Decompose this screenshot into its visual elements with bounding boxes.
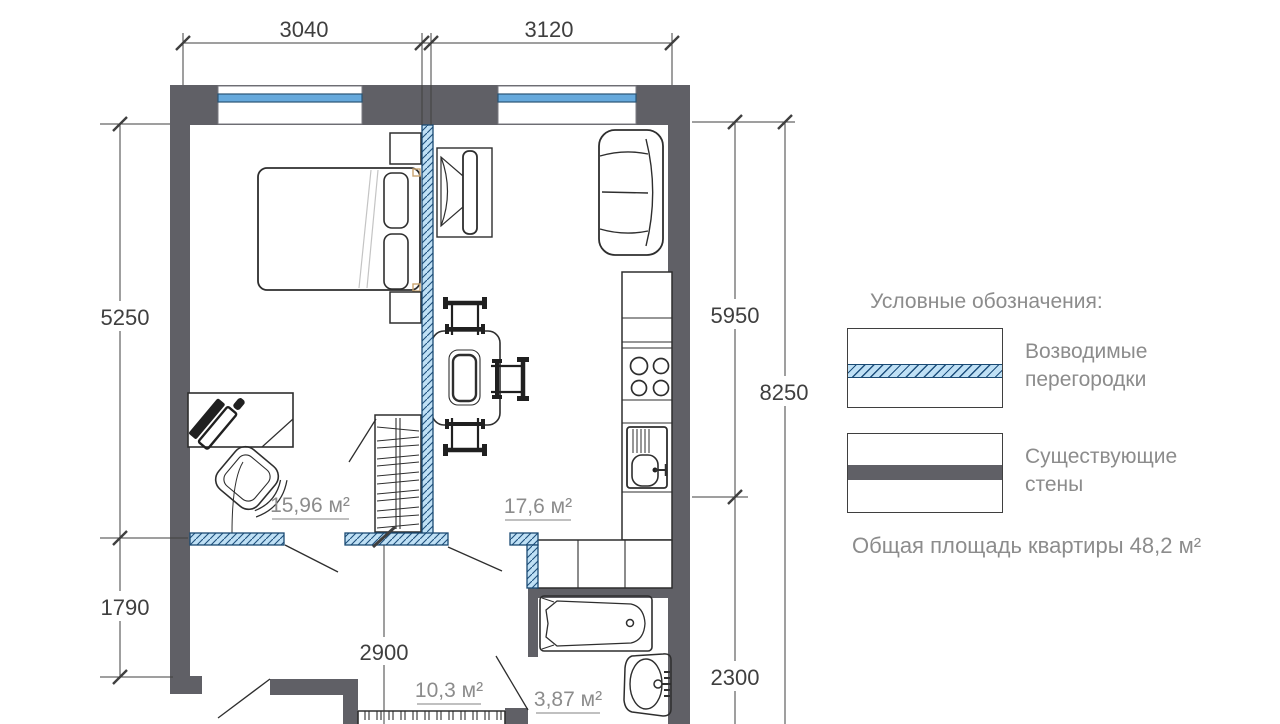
entrance-door [218, 679, 270, 718]
partition-center [345, 533, 448, 545]
dim-right-upper: 5950 [711, 303, 760, 328]
dim-right-total: 8250 [760, 380, 809, 405]
partition-hatch-band [848, 364, 1002, 378]
window-1 [218, 86, 362, 124]
room-label-bedroom: 15,96 м² [270, 494, 350, 517]
legend-label-partitions: Возводимые перегородки [1025, 338, 1190, 393]
dim-left-upper: 5250 [101, 305, 150, 330]
partition-bath-h [510, 533, 538, 545]
sofa [599, 130, 663, 255]
bottom-wall-horizontal [270, 679, 358, 695]
hall-wardrobe [358, 711, 505, 724]
dining-chair [443, 297, 487, 335]
dim-hall: 2900 [360, 640, 409, 665]
washbasin [624, 654, 671, 716]
bathroom-left-wall [528, 598, 538, 657]
legend-swatch-partitions [847, 328, 1003, 408]
bedroom-wardrobe [349, 415, 421, 532]
window-2 [498, 86, 636, 124]
dim-top-left: 3040 [280, 17, 329, 42]
dim-right-lower: 2300 [711, 665, 760, 690]
dim-left-lower: 1790 [101, 595, 150, 620]
legend-title: Условные обозначения: [870, 290, 1103, 314]
nightstand [390, 292, 421, 323]
partition-bath-v [527, 545, 538, 588]
dining-table [432, 331, 500, 425]
living-door [448, 547, 502, 571]
bathroom-door-stub [505, 708, 528, 724]
kitchen-counter-bottom [537, 540, 672, 588]
legend-label-walls: Существующие стены [1025, 443, 1190, 498]
room-label-living: 17,6 м² [504, 495, 572, 518]
bathtub [540, 596, 652, 651]
dining-chair [443, 418, 487, 456]
floor-plan-page: 3040 3120 5250 1790 5950 8250 2300 2900 … [0, 0, 1280, 724]
left-wall-stub [190, 676, 202, 694]
wall-band [848, 465, 1002, 480]
pillow [384, 173, 408, 228]
room-label-bathroom: 3,87 м² [534, 688, 602, 711]
room-label-hall: 10,3 м² [415, 679, 483, 702]
bottom-wall-vertical [343, 695, 358, 724]
nightstand [390, 133, 421, 164]
dim-top-right: 3120 [525, 17, 574, 42]
kitchen-counter [537, 272, 672, 588]
legend-swatch-walls [847, 433, 1003, 513]
pillow [384, 234, 408, 289]
tv-unit [437, 148, 492, 237]
wardrobe-door-line [349, 419, 376, 462]
partition-bedroom [190, 533, 284, 545]
total-area-text: Общая площадь квартиры 48,2 м² [852, 533, 1201, 559]
bathroom-door [496, 656, 528, 710]
left-wall [170, 125, 190, 694]
bed [258, 168, 420, 291]
bedroom-door [285, 545, 338, 572]
dining-chair [491, 357, 529, 401]
partition-vertical [422, 125, 433, 545]
